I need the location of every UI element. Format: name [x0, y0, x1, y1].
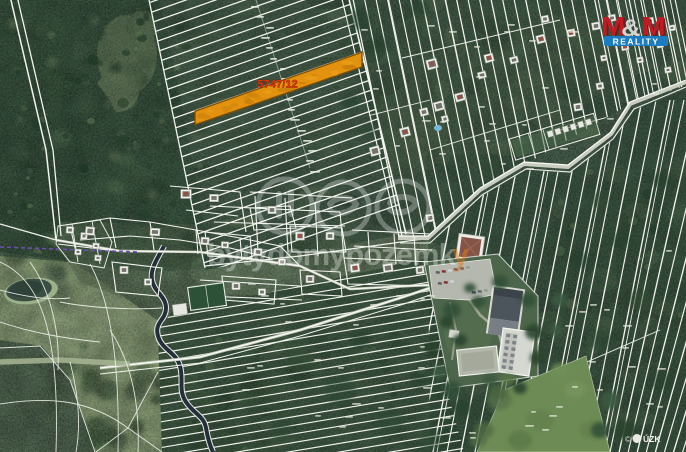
svg-text:bytydomypozemk: bytydomypozemk [207, 237, 457, 272]
svg-text:y: y [452, 237, 470, 272]
svg-text:REALITY: REALITY [613, 37, 660, 47]
svg-text:ÚZK: ÚZK [643, 433, 661, 444]
svg-text:5747/12: 5747/12 [258, 79, 298, 91]
svg-text:©: © [625, 435, 631, 444]
